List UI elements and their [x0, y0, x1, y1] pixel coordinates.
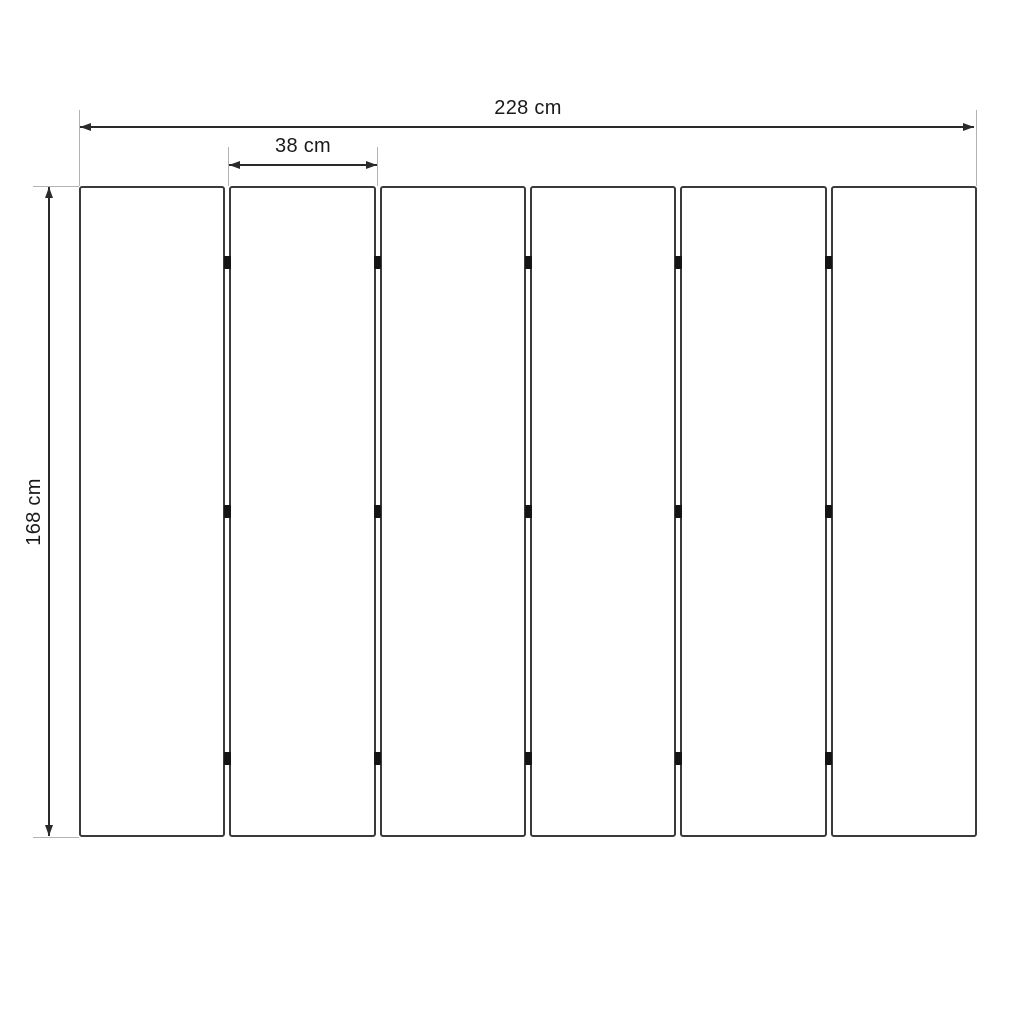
- extension-line-height-top: [33, 186, 79, 187]
- arrowhead-up-icon: [45, 187, 53, 198]
- extension-line-total-left: [79, 110, 80, 186]
- technical-drawing-canvas: 228 cm 38 cm 168 cm: [0, 0, 1024, 1024]
- panel-width-label: 38 cm: [228, 135, 378, 158]
- arrowhead-right-icon: [963, 123, 974, 131]
- panel-4: [530, 186, 676, 837]
- total-width-dimension-line: [80, 126, 974, 128]
- panel-1: [79, 186, 225, 837]
- panel-3: [380, 186, 526, 837]
- extension-line-height-bottom: [33, 837, 79, 838]
- total-width-label: 228 cm: [428, 97, 628, 120]
- panel-2: [229, 186, 375, 837]
- arrowhead-left-icon: [229, 161, 240, 169]
- arrowhead-down-icon: [45, 825, 53, 836]
- arrowhead-left-icon: [80, 123, 91, 131]
- height-label: 168 cm: [20, 452, 48, 572]
- panel-width-dimension-line: [229, 164, 377, 166]
- panel-5: [680, 186, 826, 837]
- height-dimension-line: [48, 187, 50, 836]
- panel-6: [831, 186, 977, 837]
- arrowhead-right-icon: [366, 161, 377, 169]
- panels-row: [79, 186, 977, 837]
- extension-line-total-right: [976, 110, 977, 186]
